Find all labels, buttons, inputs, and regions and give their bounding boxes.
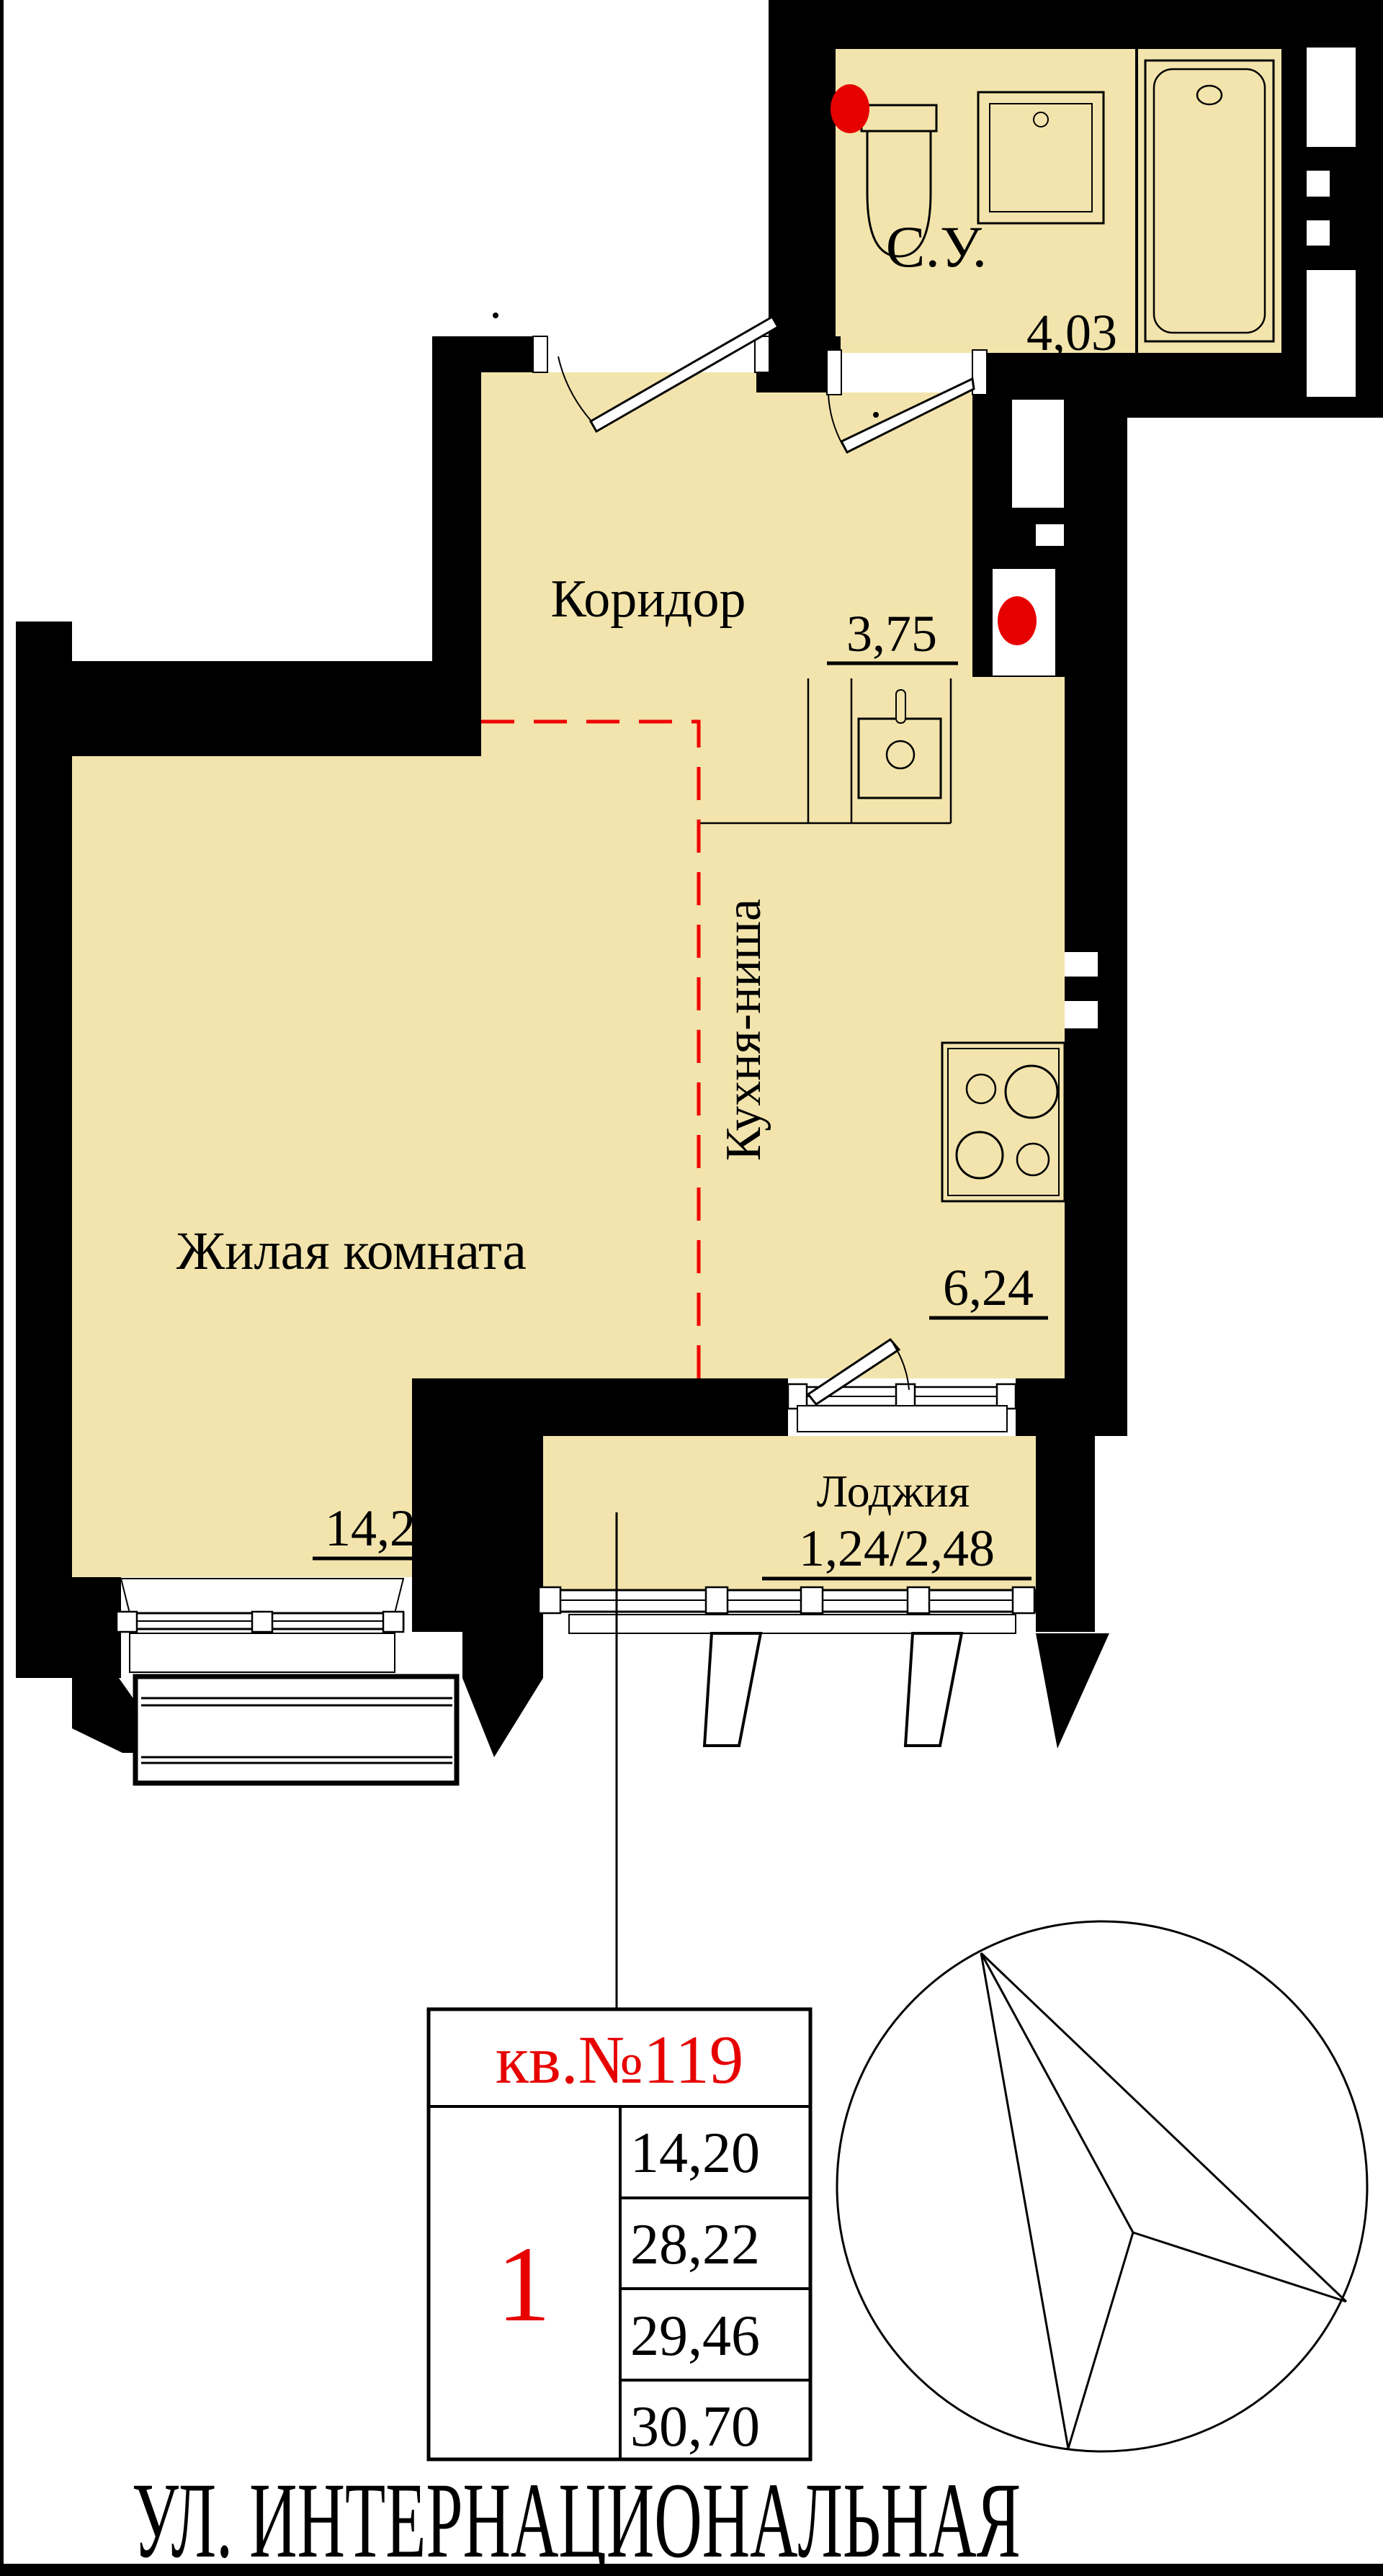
wall-kitchen-bottom-left (412, 1378, 788, 1436)
corridor-label: Коридор (551, 570, 746, 629)
wall-wedge-loggia-right (1036, 1633, 1109, 1749)
balcony-door-sill (797, 1406, 1007, 1432)
corridor-area: 3,75 (846, 605, 937, 663)
apartment-number-label: кв.№119 (496, 2021, 743, 2098)
loggia-label: Лоджия (817, 1466, 970, 1517)
table-row-living-area: 14,20 (630, 2122, 760, 2185)
red-marker-bathroom (831, 84, 869, 133)
page-border-left (0, 0, 4, 2565)
wall-exterior-left (16, 621, 72, 1678)
north-arrow-icon (837, 1921, 1367, 2451)
living-window (117, 1579, 457, 1783)
apartment-table: кв.№119 1 14,20 28,22 29,46 30,70 (429, 2009, 810, 2459)
table-row-area-2: 28,22 (630, 2213, 760, 2276)
wall-loggia-right (1036, 1436, 1095, 1632)
bathroom-label: С.У. (886, 214, 987, 279)
living-window-outer-box (135, 1677, 457, 1783)
loggia-window (539, 1587, 1036, 1746)
wall-bathroom-bottom-right (1124, 396, 1383, 418)
living-label: Жилая комната (176, 1221, 527, 1281)
living-window-sill (130, 1633, 395, 1672)
floor-plan-page: С.У. 4,03 Коридор 3,75 Кухня-ниша 6,24 Ж… (0, 0, 1383, 2576)
wall-kitchen-bottom-right (1016, 1378, 1127, 1436)
wall-wedge-under-divider (462, 1632, 543, 1757)
rooms-count: 1 (497, 2225, 551, 2344)
wall-living-bottom-left (72, 1577, 121, 1678)
kitchen-area: 6,24 (943, 1259, 1034, 1316)
floor-plan-svg: С.У. 4,03 Коридор 3,75 Кухня-ниша 6,24 Ж… (0, 0, 1383, 2576)
loggia-area: 1,24/2,48 (799, 1520, 995, 1577)
loggia-support-left (704, 1633, 761, 1746)
wall-living-top (27, 661, 481, 756)
shaft-divider-line (1056, 569, 1060, 676)
bathroom-area: 4,03 (1026, 304, 1117, 362)
kitchen-label: Кухня-ниша (716, 899, 771, 1161)
wall-corridor-left (432, 336, 481, 702)
table-row-area-3: 29,46 (630, 2305, 760, 2368)
living-area: 14,20 (325, 1499, 442, 1557)
street-name: УЛ. ИНТЕРНАЦИОНАЛЬНАЯ (132, 2461, 1021, 2576)
table-row-area-4: 30,70 (630, 2395, 760, 2459)
red-marker-corridor (998, 596, 1037, 645)
loggia-window-sill (569, 1615, 1016, 1633)
loggia-support-right (905, 1633, 962, 1746)
